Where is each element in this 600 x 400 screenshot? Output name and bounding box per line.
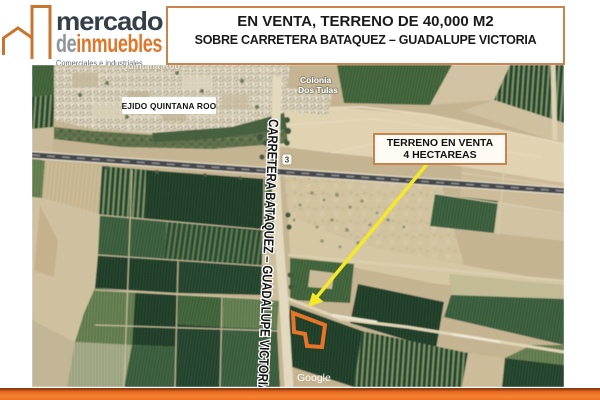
svg-text:Google: Google: [297, 372, 331, 384]
svg-text:Quintana Roo: Quintana Roo: [121, 65, 180, 71]
svg-text:3: 3: [285, 156, 290, 165]
svg-text:EJIDO QUINTANA ROO: EJIDO QUINTANA ROO: [122, 101, 217, 111]
svg-text:Colonia: Colonia: [300, 75, 331, 85]
svg-text:Dos Tulas: Dos Tulas: [298, 85, 338, 95]
